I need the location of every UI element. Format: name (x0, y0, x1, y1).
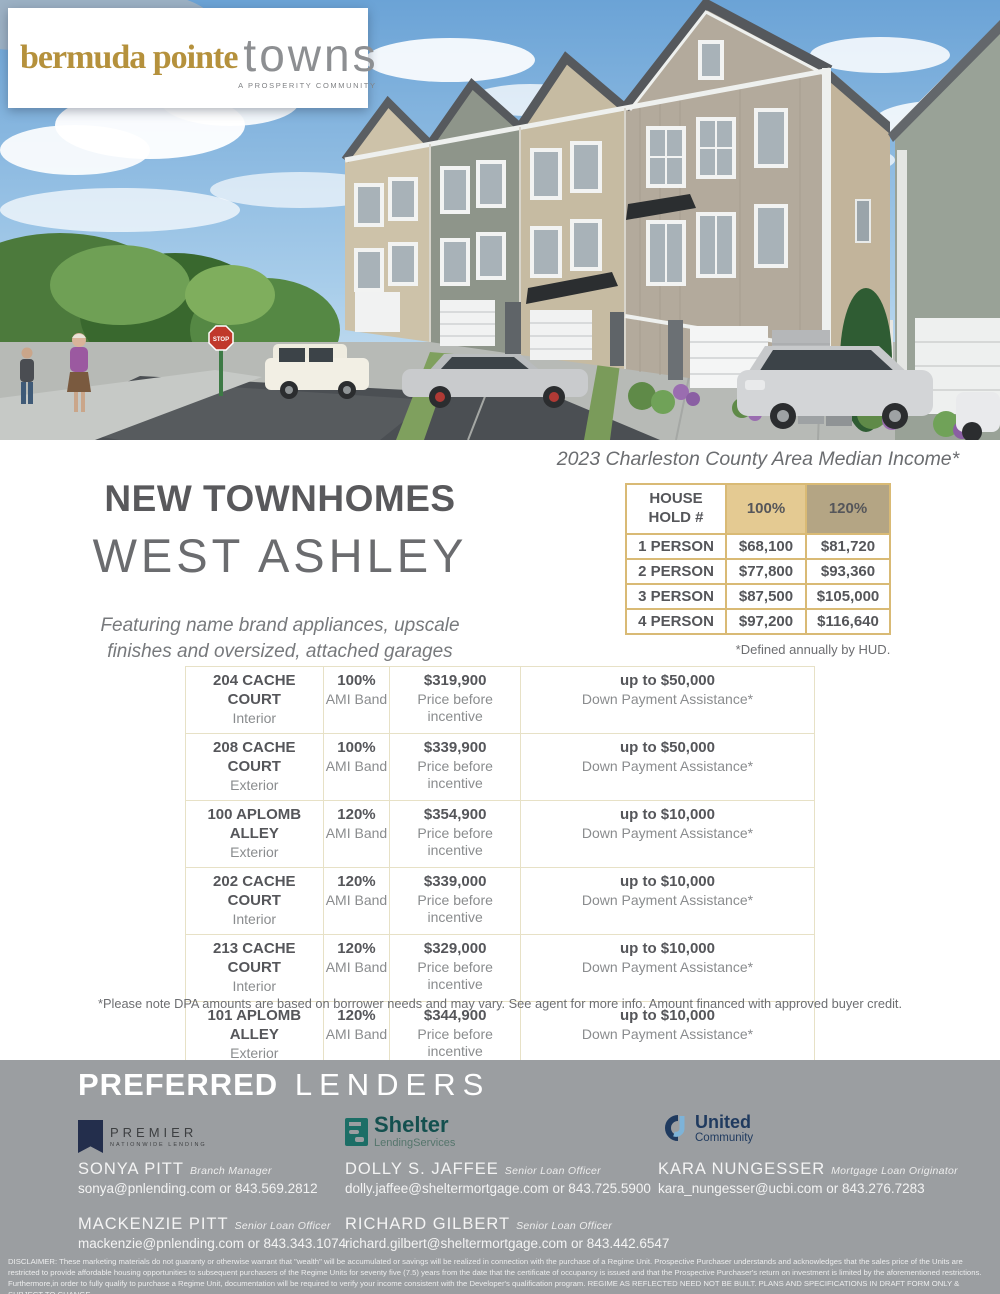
shelter-lending-logo: Shelter LendingServices (345, 1114, 455, 1149)
ami-income-table: HOUSE HOLD # 100% 120% 1 PERSON $68,100 … (625, 483, 891, 635)
listing-unit-type: Interior (188, 911, 321, 929)
contact-kara-nungesser: KARA NUNGESSERMortgage Loan Originator k… (658, 1160, 958, 1196)
income-cell: $93,360 (806, 559, 890, 584)
listing-address: 213 CACHE COURT (188, 940, 321, 978)
listing-ami-label: AMI Band (326, 825, 388, 843)
premier-nationwide-lending-logo: PREMIER NATIONWIDE LENDING (78, 1120, 207, 1153)
contact-mackenzie-pitt: MACKENZIE PITTSenior Loan Officer macken… (78, 1215, 346, 1251)
listing-ami: 120% (326, 873, 388, 892)
income-row: 3 PERSON $87,500 $105,000 (626, 584, 890, 609)
listing-dpa-label: Down Payment Assistance* (523, 825, 812, 843)
listing-price: $339,900 (392, 739, 518, 758)
united-logo-text: United (695, 1113, 753, 1131)
income-cell: $87,500 (726, 584, 806, 609)
contact-info: sonya@pnlending.com or 843.569.2812 (78, 1181, 318, 1196)
listing-dpa-label: Down Payment Assistance* (523, 691, 812, 709)
page-title: NEW TOWNHOMES (55, 478, 505, 520)
income-cell: $105,000 (806, 584, 890, 609)
listing-dpa: up to $10,000 (523, 940, 812, 959)
listing-ami-label: AMI Band (326, 1026, 388, 1044)
income-footnote: *Defined annually by HUD. (548, 642, 968, 657)
brand-logo: bermuda pointe towns A PROSPERITY COMMUN… (8, 8, 368, 108)
svg-text:STOP: STOP (213, 337, 229, 343)
listing-dpa-label: Down Payment Assistance* (523, 892, 812, 910)
listing-ami-label: AMI Band (326, 758, 388, 776)
listing-row: 202 CACHE COURTInterior 120%AMI Band $33… (186, 868, 814, 935)
listing-price: $329,000 (392, 940, 518, 959)
listing-row: 204 CACHE COURTInterior 100%AMI Band $31… (186, 667, 814, 734)
united-logo-subtext: Community (695, 1132, 753, 1144)
listing-price: $319,900 (392, 672, 518, 691)
income-cell: 3 PERSON (626, 584, 726, 609)
listing-price-label: Price before incentive (392, 825, 518, 860)
listing-dpa: up to $10,000 (523, 806, 812, 825)
listing-row: 213 CACHE COURTInterior 120%AMI Band $32… (186, 935, 814, 1002)
income-row: 2 PERSON $77,800 $93,360 (626, 559, 890, 584)
contact-sonya-pitt: SONYA PITTBranch Manager sonya@pnlending… (78, 1160, 318, 1196)
shelter-icon (345, 1118, 368, 1146)
listings-footnote: *Please note DPA amounts are based on bo… (0, 996, 1000, 1011)
listing-unit-type: Exterior (188, 777, 321, 795)
listing-price-label: Price before incentive (392, 758, 518, 793)
listing-ami-label: AMI Band (326, 691, 388, 709)
page-subtitle: WEST ASHLEY (55, 528, 505, 583)
legal-disclaimer: DISCLAIMER: These marketing materials do… (8, 1257, 992, 1294)
premier-logo-subtext: NATIONWIDE LENDING (110, 1142, 207, 1148)
united-community-logo: United Community (658, 1112, 753, 1144)
listing-row: 101 APLOMB ALLEYExterior 120%AMI Band $3… (186, 1002, 814, 1069)
contact-info: richard.gilbert@sheltermortgage.com or 8… (345, 1236, 669, 1251)
contact-name: DOLLY S. JAFFEE (345, 1160, 499, 1178)
preferred-lenders-heading: PREFERRED LENDERS (78, 1067, 490, 1103)
income-cell: $81,720 (806, 534, 890, 559)
contact-richard-gilbert: RICHARD GILBERTSenior Loan Officer richa… (345, 1215, 669, 1251)
preferred-lenders-footer: PREFERRED LENDERS PREMIER NATIONWIDE LEN… (0, 1060, 1000, 1294)
shelter-logo-text: Shelter (374, 1114, 455, 1136)
listing-ami: 100% (326, 672, 388, 691)
listing-ami: 120% (326, 806, 388, 825)
income-header-100: 100% (726, 484, 806, 534)
flyer-page: STOP bermuda pointe towns A PROSPERITY C… (0, 0, 1000, 1294)
contact-info: dolly.jaffee@sheltermortgage.com or 843.… (345, 1181, 651, 1196)
listing-ami: 100% (326, 739, 388, 758)
heading-preferred: PREFERRED (78, 1067, 278, 1102)
contact-dolly-jaffee: DOLLY S. JAFFEESenior Loan Officer dolly… (345, 1160, 651, 1196)
listing-unit-type: Interior (188, 978, 321, 996)
listing-address: 208 CACHE COURT (188, 739, 321, 777)
listing-row: 208 CACHE COURTExterior 100%AMI Band $33… (186, 734, 814, 801)
contact-title: Mortgage Loan Originator (831, 1165, 958, 1177)
contact-title: Senior Loan Officer (235, 1220, 331, 1232)
contact-name: RICHARD GILBERT (345, 1215, 510, 1233)
income-row: 1 PERSON $68,100 $81,720 (626, 534, 890, 559)
listing-address: 100 APLOMB ALLEY (188, 806, 321, 844)
listing-price-label: Price before incentive (392, 959, 518, 994)
income-row: 4 PERSON $97,200 $116,640 (626, 609, 890, 634)
contact-info: mackenzie@pnlending.com or 843.343.1074 (78, 1236, 346, 1251)
listing-dpa-label: Down Payment Assistance* (523, 1026, 812, 1044)
contact-info: kara_nungesser@ucbi.com or 843.276.7283 (658, 1181, 958, 1196)
income-table-block: 2023 Charleston County Area Median Incom… (548, 448, 968, 657)
listing-address: 101 APLOMB ALLEY (188, 1007, 321, 1045)
income-cell: 4 PERSON (626, 609, 726, 634)
listing-dpa: up to $50,000 (523, 672, 812, 691)
premier-flag-icon (78, 1120, 103, 1153)
brand-name-light: towns (243, 29, 378, 81)
listing-unit-type: Exterior (188, 844, 321, 862)
listing-price: $354,900 (392, 806, 518, 825)
income-cell: 1 PERSON (626, 534, 726, 559)
contact-name: MACKENZIE PITT (78, 1215, 229, 1233)
listing-unit-type: Interior (188, 710, 321, 728)
united-community-icon (658, 1112, 690, 1144)
income-header-120: 120% (806, 484, 890, 534)
shelter-logo-subtext: LendingServices (374, 1137, 455, 1149)
listing-price-label: Price before incentive (392, 691, 518, 726)
income-cell: $116,640 (806, 609, 890, 634)
premier-logo-text: PREMIER (110, 1125, 207, 1140)
listing-address: 202 CACHE COURT (188, 873, 321, 911)
income-cell: 2 PERSON (626, 559, 726, 584)
income-table-title: 2023 Charleston County Area Median Incom… (548, 448, 968, 471)
listing-price: $339,000 (392, 873, 518, 892)
brand-tagline: A PROSPERITY COMMUNITY (238, 81, 376, 90)
income-cell: $77,800 (726, 559, 806, 584)
contact-name: SONYA PITT (78, 1160, 184, 1178)
contact-name: KARA NUNGESSER (658, 1160, 825, 1178)
income-cell: $97,200 (726, 609, 806, 634)
contact-title: Branch Manager (190, 1165, 272, 1177)
contact-title: Senior Loan Officer (516, 1220, 612, 1232)
listing-dpa-label: Down Payment Assistance* (523, 959, 812, 977)
listing-dpa: up to $10,000 (523, 873, 812, 892)
income-header-household: HOUSE HOLD # (626, 484, 726, 534)
listing-dpa: up to $50,000 (523, 739, 812, 758)
brand-name-gold: bermuda pointe (20, 39, 237, 77)
listing-ami: 120% (326, 940, 388, 959)
intro-tagline: Featuring name brand appliances, upscale… (80, 613, 480, 664)
listing-dpa-label: Down Payment Assistance* (523, 758, 812, 776)
listing-ami-label: AMI Band (326, 892, 388, 910)
income-cell: $68,100 (726, 534, 806, 559)
hero-rendering: STOP bermuda pointe towns A PROSPERITY C… (0, 0, 1000, 440)
listing-price-label: Price before incentive (392, 1026, 518, 1061)
heading-lenders: LENDERS (295, 1067, 490, 1102)
listing-address: 204 CACHE COURT (188, 672, 321, 710)
intro-block: NEW TOWNHOMES WEST ASHLEY Featuring name… (55, 478, 505, 664)
listing-price-label: Price before incentive (392, 892, 518, 927)
contact-title: Senior Loan Officer (505, 1165, 601, 1177)
listing-row: 100 APLOMB ALLEYExterior 120%AMI Band $3… (186, 801, 814, 868)
listing-ami-label: AMI Band (326, 959, 388, 977)
body-section: NEW TOWNHOMES WEST ASHLEY Featuring name… (0, 440, 1000, 1060)
